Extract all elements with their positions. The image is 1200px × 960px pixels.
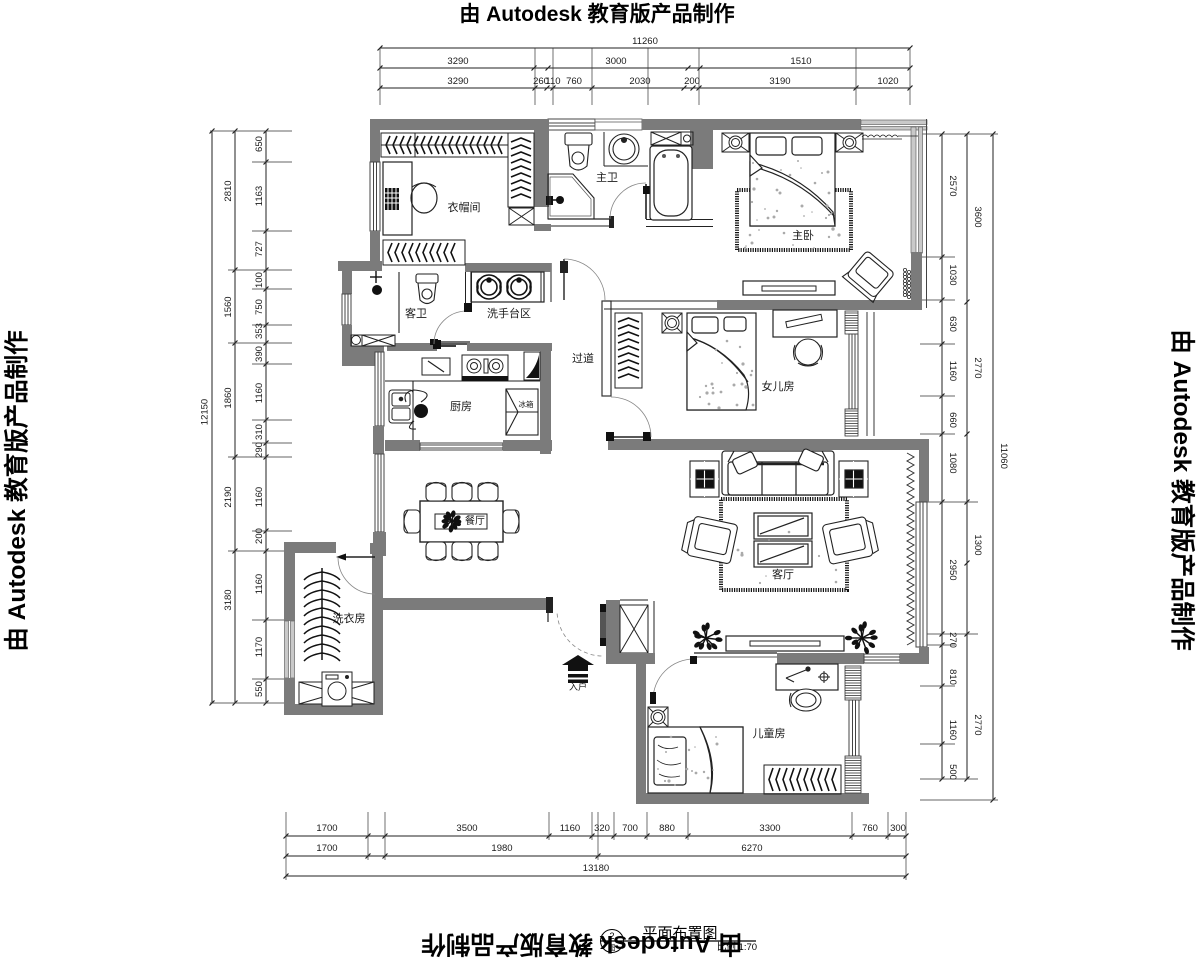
svg-text:1160: 1160 <box>947 361 958 381</box>
svg-text:客卫: 客卫 <box>405 306 427 320</box>
svg-text:290: 290 <box>254 442 265 458</box>
svg-text:6270: 6270 <box>741 843 762 854</box>
svg-text:300: 300 <box>890 823 906 834</box>
svg-text:由 Autodesk 教育版产品制作: 由 Autodesk 教育版产品制作 <box>1168 329 1197 650</box>
svg-text:由 Autodesk 教育版产品制作: 由 Autodesk 教育版产品制作 <box>459 2 734 26</box>
svg-text:100: 100 <box>254 272 265 288</box>
svg-text:3190: 3190 <box>769 76 790 87</box>
svg-text:270: 270 <box>947 632 958 648</box>
svg-text:1170: 1170 <box>254 637 265 657</box>
svg-text:1080: 1080 <box>947 452 958 473</box>
svg-text:1160: 1160 <box>254 574 265 594</box>
svg-text:1020: 1020 <box>877 76 898 87</box>
svg-text:810: 810 <box>947 669 958 685</box>
svg-text:310: 310 <box>254 424 265 440</box>
svg-text:3000: 3000 <box>605 56 626 67</box>
svg-text:2810: 2810 <box>223 180 234 201</box>
svg-text:入户: 入户 <box>569 681 587 692</box>
svg-text:760: 760 <box>566 76 582 87</box>
svg-text:2: 2 <box>609 931 614 941</box>
svg-text:630: 630 <box>947 316 958 332</box>
svg-text:880: 880 <box>659 823 675 834</box>
svg-text:700: 700 <box>622 823 638 834</box>
svg-text:3290: 3290 <box>447 56 468 67</box>
svg-text:1163: 1163 <box>254 186 265 206</box>
svg-text:1160: 1160 <box>254 487 265 507</box>
svg-text:儿童房: 儿童房 <box>753 726 786 740</box>
svg-text:353: 353 <box>254 323 265 339</box>
svg-text:500: 500 <box>947 764 958 780</box>
svg-text:200: 200 <box>254 528 265 544</box>
svg-text:727: 727 <box>254 241 265 257</box>
svg-text:1560: 1560 <box>223 296 234 317</box>
svg-text:760: 760 <box>862 823 878 834</box>
svg-text:320: 320 <box>594 823 610 834</box>
svg-text:女儿房: 女儿房 <box>762 379 795 393</box>
svg-text:3500: 3500 <box>456 823 477 834</box>
svg-text:2190: 2190 <box>223 486 234 507</box>
svg-text:390: 390 <box>254 346 265 362</box>
svg-text:冰箱: 冰箱 <box>519 399 534 409</box>
svg-text:12150: 12150 <box>200 399 211 425</box>
svg-text:3290: 3290 <box>447 76 468 87</box>
svg-text:1860: 1860 <box>223 387 234 408</box>
svg-text:550: 550 <box>254 681 265 697</box>
svg-text:2950: 2950 <box>947 559 958 580</box>
svg-text:餐厅: 餐厅 <box>465 514 485 527</box>
svg-text:由 Autodesk 教育版产品制作: 由 Autodesk 教育版产品制作 <box>2 330 31 651</box>
svg-text:2570: 2570 <box>947 175 958 196</box>
svg-text:1160: 1160 <box>560 823 580 834</box>
svg-text:平面布置图: 平面布置图 <box>642 925 717 942</box>
svg-text:3300: 3300 <box>759 823 780 834</box>
svg-text:洗衣房: 洗衣房 <box>333 611 366 625</box>
svg-text:650: 650 <box>254 136 265 152</box>
svg-text:1700: 1700 <box>316 843 337 854</box>
svg-text:衣帽间: 衣帽间 <box>448 200 481 214</box>
svg-text:洗手台区: 洗手台区 <box>487 306 531 320</box>
svg-text:1700: 1700 <box>316 823 337 834</box>
svg-text:厨房: 厨房 <box>450 400 472 413</box>
svg-text:1510: 1510 <box>790 56 811 67</box>
svg-text:过道: 过道 <box>572 351 594 365</box>
svg-text:13180: 13180 <box>583 863 609 874</box>
svg-text:1160: 1160 <box>254 383 265 403</box>
svg-text:客厅: 客厅 <box>772 567 794 581</box>
svg-text:11060: 11060 <box>998 443 1009 469</box>
svg-text:主卧: 主卧 <box>792 229 814 242</box>
svg-text:2770: 2770 <box>972 357 983 378</box>
svg-text:750: 750 <box>254 299 265 315</box>
svg-text:3180: 3180 <box>223 589 234 610</box>
svg-text:比例 1:70: 比例 1:70 <box>717 941 757 953</box>
svg-text:1030: 1030 <box>947 264 958 285</box>
svg-text:1300: 1300 <box>972 534 983 555</box>
svg-text:1980: 1980 <box>491 843 512 854</box>
svg-text:660: 660 <box>947 412 958 428</box>
svg-text:11260: 11260 <box>632 36 658 47</box>
svg-text:图: 图 <box>609 944 616 952</box>
svg-text:3600: 3600 <box>972 206 983 227</box>
svg-text:200: 200 <box>684 76 700 87</box>
svg-text:2770: 2770 <box>972 714 983 735</box>
svg-text:主卫: 主卫 <box>596 171 618 184</box>
svg-text:1160: 1160 <box>947 720 958 740</box>
svg-text:2030: 2030 <box>629 76 650 87</box>
